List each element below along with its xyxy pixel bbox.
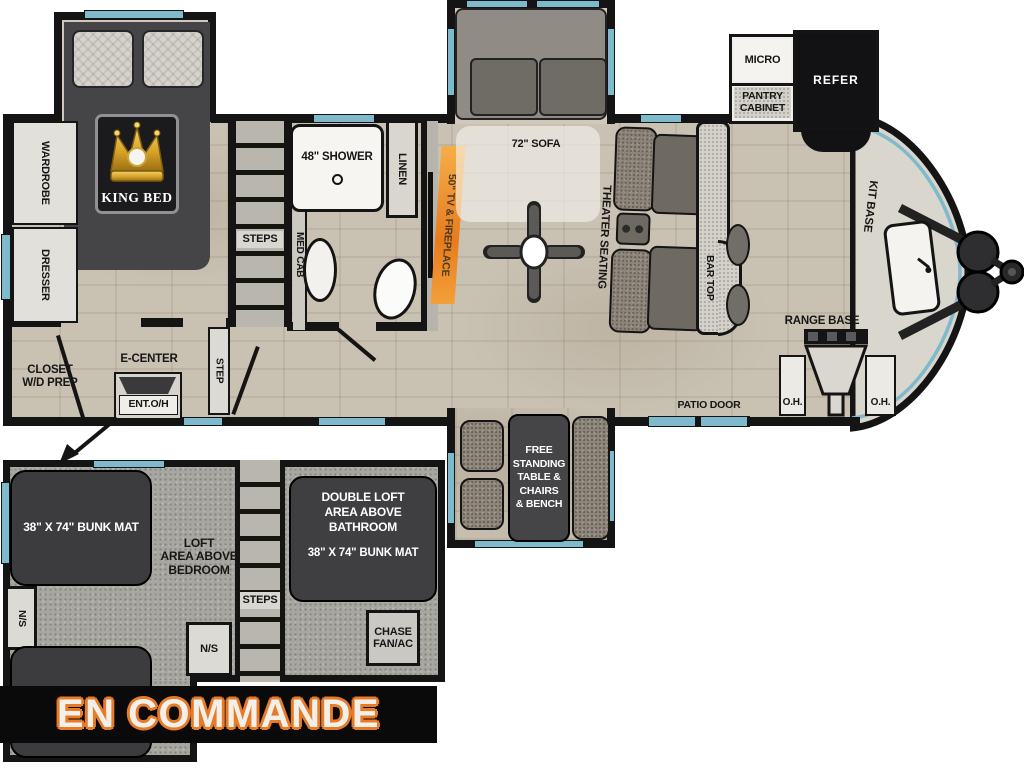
- bar-top-label: BAR TOP: [703, 228, 715, 328]
- step-box: STEP: [208, 327, 230, 415]
- window-bottom-hall: [318, 417, 386, 426]
- ceiling-fan-icon: [478, 196, 590, 308]
- window-top-bath: [313, 114, 375, 123]
- oh-right-label: O.H.: [871, 397, 891, 408]
- ns-right-label: N/S: [200, 643, 218, 655]
- king-bed-emblem: KING BED: [95, 114, 179, 214]
- loft-wall-right: [438, 460, 445, 682]
- loft-window-left: [1, 482, 10, 564]
- micro-pantry-cabinet: MICRO PANTRY CABINET: [729, 34, 797, 124]
- dinette-chair1: [460, 420, 504, 472]
- pillow-left: [72, 30, 134, 88]
- ent-oh-label: ENT.O/H: [119, 395, 178, 415]
- pillow-right: [142, 30, 204, 88]
- dresser-label: DRESSER: [39, 249, 51, 301]
- window-top-kitchen: [640, 114, 682, 123]
- window-bottom-closet: [183, 417, 223, 426]
- window-sofa-top-left: [466, 0, 528, 8]
- loft-window-top: [93, 460, 165, 468]
- refer-label: REFER: [813, 74, 859, 87]
- shower-drain: [332, 174, 343, 185]
- shower-label: 48" SHOWER: [301, 151, 372, 164]
- loft-steps: [235, 460, 285, 682]
- wall-steps-left: [228, 121, 236, 327]
- range-burners: [808, 332, 864, 341]
- micro-pantry-divider: [732, 83, 793, 86]
- range-base-label: RANGE BASE: [768, 314, 876, 328]
- range-vent: [804, 344, 868, 418]
- fireplace-label: & FIREPLACE: [439, 208, 456, 276]
- window-bed-slide: [84, 10, 184, 19]
- main-steps: [236, 121, 284, 327]
- window-sofa-left: [447, 28, 455, 96]
- bath-sink: [303, 238, 337, 302]
- double-loft-bunk-label: 38" X 74" BUNK MAT: [308, 547, 419, 560]
- main-steps-label: STEPS: [237, 231, 283, 248]
- micro-label: MICRO: [734, 39, 791, 81]
- double-loft-label: DOUBLE LOFT AREA ABOVE BATHROOM: [321, 490, 404, 535]
- dinette-bench: [572, 416, 610, 540]
- bunk-mat-label: 38" X 74" BUNK MAT: [23, 521, 139, 534]
- window-sofa-top-right: [536, 0, 600, 8]
- wardrobe-cabinet: WARDROBE: [12, 121, 78, 225]
- loft-nightstand-left: N/S: [5, 586, 37, 650]
- theater-console: [616, 212, 651, 245]
- wall-bedroom-div: [141, 318, 183, 327]
- linen-label: LINEN: [396, 153, 408, 185]
- loft-pointer-line: [55, 410, 125, 466]
- bar-stool1: [726, 224, 750, 266]
- crown-icon: [98, 119, 176, 185]
- dinette-table-label: FREE STANDING TABLE & CHAIRS & BENCH: [513, 444, 565, 512]
- step-label: STEP: [213, 358, 224, 383]
- king-pin-center: [1008, 268, 1016, 276]
- rv-floorplan-page: KING BED WARDROBE DRESSER CLOSET W/D PRE…: [0, 0, 1024, 768]
- oh-left-label: O.H.: [783, 397, 803, 408]
- overhead-cabinet-right: O.H.: [865, 355, 896, 416]
- closet-label: CLOSET W/D PREP: [8, 364, 92, 390]
- dinette-table: FREE STANDING TABLE & CHAIRS & BENCH: [508, 414, 570, 542]
- loft-nightstand-right: N/S: [186, 622, 232, 676]
- wardrobe-label: WARDROBE: [39, 141, 51, 205]
- king-bed-label: KING BED: [98, 190, 176, 205]
- refrigerator-bulge: [801, 130, 871, 152]
- window-sofa-right: [607, 28, 615, 96]
- patio-door-label: PATIO DOOR: [670, 399, 748, 412]
- cupholder-left: [622, 225, 630, 233]
- chase-label: CHASE FAN/AC: [373, 626, 413, 651]
- dinette-chair2: [460, 478, 504, 530]
- sofa-cushion-left: [470, 58, 538, 116]
- status-banner-text: EN COMMANDE: [57, 692, 380, 737]
- status-banner: EN COMMANDE: [0, 686, 437, 743]
- overhead-cabinet-left: O.H.: [779, 355, 806, 416]
- shower: 48" SHOWER: [290, 124, 384, 212]
- window-left-dresser: [1, 234, 11, 300]
- sofa-label: 72" SOFA: [498, 137, 574, 151]
- e-center-tv: [119, 377, 176, 394]
- refrigerator: REFER: [793, 30, 879, 132]
- propane-tank-top: [958, 232, 998, 272]
- double-loft-mat: DOUBLE LOFT AREA ABOVE BATHROOM 38" X 74…: [289, 476, 437, 602]
- pantry-label: PANTRY CABINET: [734, 87, 791, 118]
- sofa-cushion-right: [539, 58, 607, 116]
- patio-door-glass: [648, 416, 750, 427]
- linen-cabinet: LINEN: [386, 120, 418, 218]
- chase-fan-ac: CHASE FAN/AC: [366, 610, 420, 666]
- tv-fireplace-label: 50" TV & FIREPLACE: [439, 174, 457, 276]
- faucet-base: [925, 267, 932, 274]
- ns-left-label: N/S: [15, 610, 27, 627]
- loft-wall-top: [3, 460, 445, 467]
- tv-bar: [428, 172, 433, 278]
- window-dinette-left: [447, 452, 455, 524]
- dresser-cabinet: DRESSER: [12, 227, 78, 323]
- loft-steps-label: STEPS: [240, 592, 280, 609]
- bar-stool2: [726, 284, 750, 326]
- cupholder-right: [635, 225, 643, 233]
- range-burner-bar: [804, 329, 868, 344]
- loft-area-label: LOFT AREA ABOVE BEDROOM: [152, 528, 246, 586]
- loft-bunk-mat-top: 38" X 74" BUNK MAT: [10, 470, 152, 586]
- e-center-label: E-CENTER: [110, 352, 188, 366]
- propane-tank-bottom: [958, 272, 998, 312]
